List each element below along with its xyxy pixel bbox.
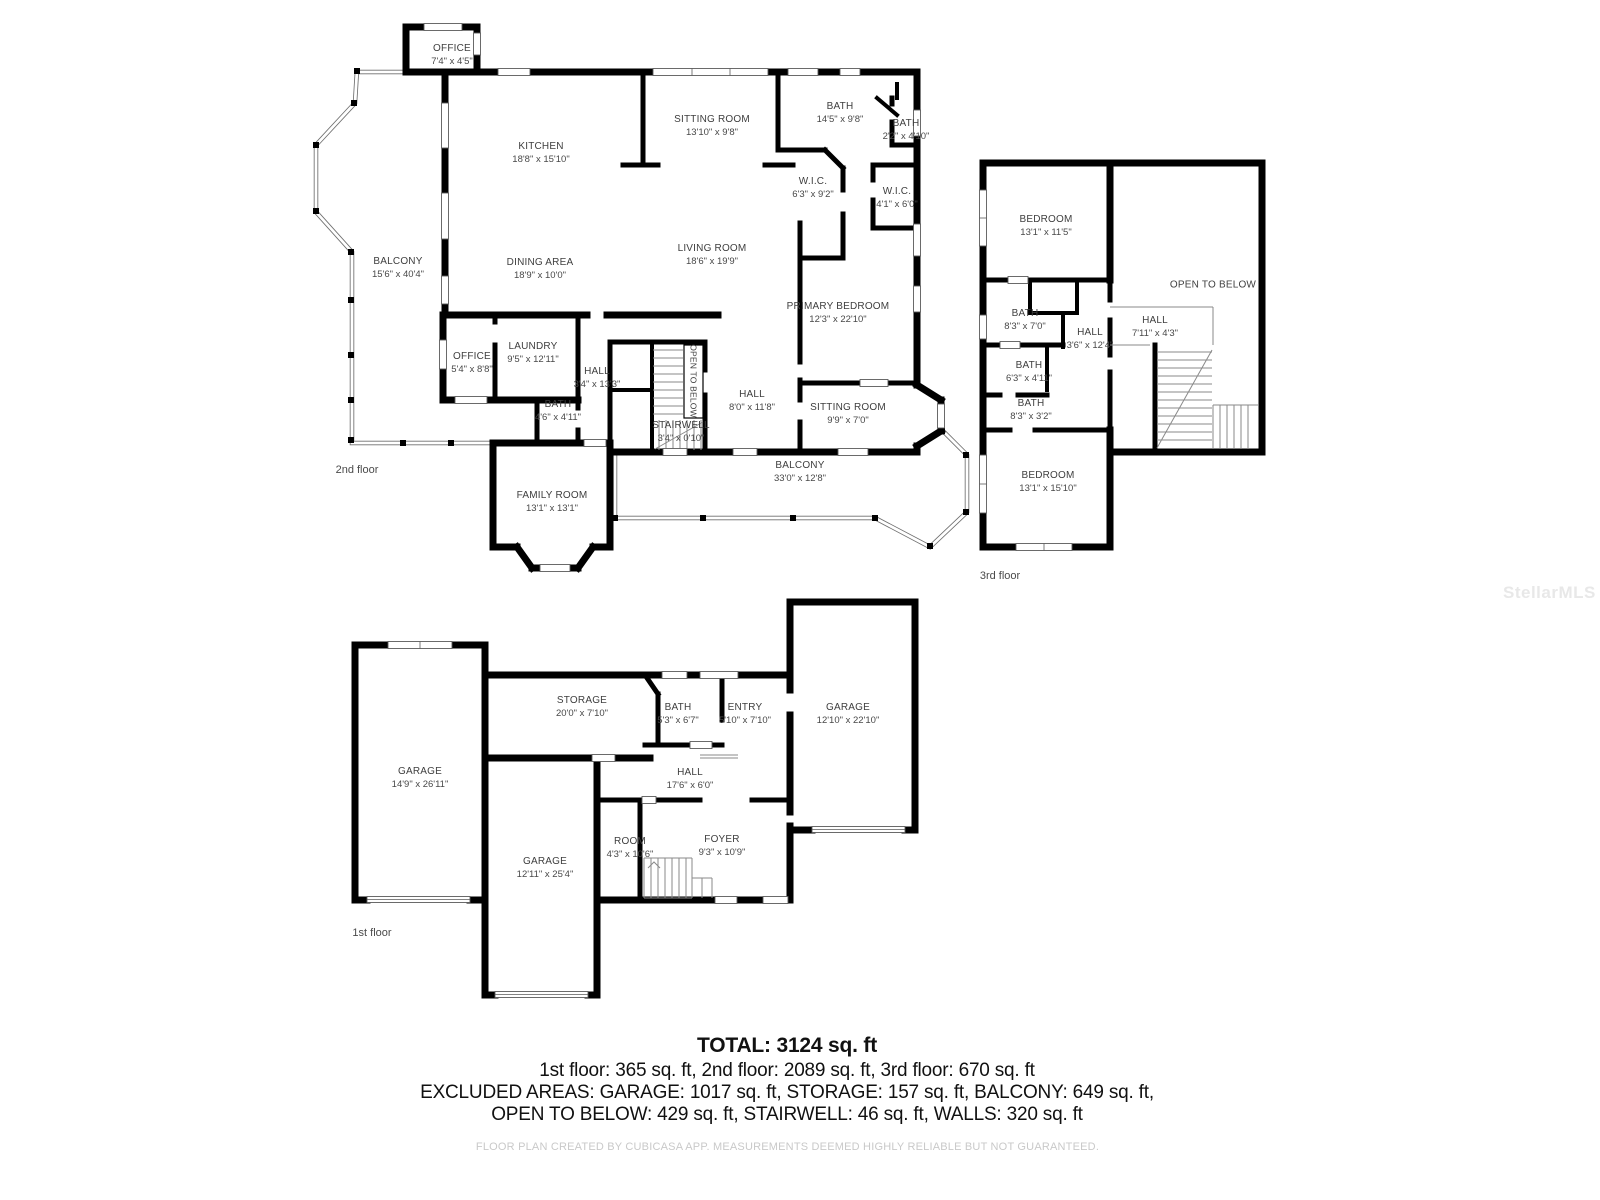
room-label-family-room: FAMILY ROOM13'1" x 13'1" (517, 489, 588, 515)
room-label-sitting-room: SITTING ROOM9'9" x 7'0" (810, 401, 886, 427)
room-label-bath: BATH2'2" x 4'10" (883, 117, 930, 143)
floor-label-3rd-floor: 3rd floor (980, 570, 1020, 582)
room-label-garage: GARAGE12'11" x 25'4" (517, 855, 574, 881)
room-label-bath: BATH6'3" x 4'11" (1006, 359, 1052, 385)
room-label-hall: HALL17'6" x 6'0" (667, 766, 714, 792)
windows-2nd-floor (424, 24, 945, 572)
room-label-kitchen: KITCHEN18'8" x 15'10" (512, 140, 569, 166)
room-label-living-room: LIVING ROOM18'6" x 19'9" (678, 242, 747, 268)
total-area: TOTAL: 3124 sq. ft (387, 1034, 1187, 1058)
floor-areas: 1st floor: 365 sq. ft, 2nd floor: 2089 s… (387, 1060, 1187, 1082)
room-label-open-to-below: OPEN TO BELOW (1170, 279, 1256, 292)
room-label-bedroom: BEDROOM13'1" x 15'10" (1019, 469, 1076, 495)
floor-2-walls (313, 24, 969, 572)
room-label-foyer: FOYER9'3" x 10'9" (699, 833, 746, 859)
room-label-balcony: BALCONY15'6" x 40'4" (372, 255, 424, 281)
room-label-balcony: BALCONY33'0" x 12'8" (774, 459, 826, 485)
floor-1-walls (355, 602, 915, 998)
room-label-bath: BATH5'3" x 6'7" (657, 701, 699, 727)
room-label-bath: BATH14'5" x 9'8" (817, 100, 864, 126)
floor-label-2nd-floor: 2nd floor (336, 464, 379, 476)
room-label-bath: BATH8'3" x 3'2" (1010, 397, 1052, 423)
floor-label-1st-floor: 1st floor (352, 927, 391, 939)
room-label-office: OFFICE7'4" x 4'5" (431, 42, 473, 68)
room-label-sitting-room: SITTING ROOM13'10" x 9'8" (674, 113, 750, 139)
room-label-hall: HALL7'11" x 4'3" (1132, 314, 1178, 340)
floorplan-page: OFFICE7'4" x 4'5"KITCHEN18'8" x 15'10"SI… (0, 0, 1600, 1200)
disclaimer-text: FLOOR PLAN CREATED BY CUBICASA APP. MEAS… (300, 1141, 1275, 1153)
excluded-areas-1: EXCLUDED AREAS: GARAGE: 1017 sq. ft, STO… (387, 1082, 1187, 1104)
room-label-room: ROOM4'3" x 10'6" (607, 835, 654, 861)
area-summary: TOTAL: 3124 sq. ft 1st floor: 365 sq. ft… (387, 1034, 1187, 1126)
room-label-stairwell: STAIRWELL3'4" x 0'10" (652, 419, 710, 445)
stairs-1st-floor (644, 858, 712, 898)
room-label-primary-bedroom: PRIMARY BEDROOM12'3" x 22'10" (787, 300, 890, 326)
excluded-areas-2: OPEN TO BELOW: 429 sq. ft, STAIRWELL: 46… (387, 1104, 1187, 1126)
room-label-entry: ENTRY5'10" x 7'10" (719, 701, 771, 727)
room-label-hall: HALL3'6" x 12'4" (1067, 326, 1114, 352)
stairs-3rd-floor (1157, 350, 1258, 448)
room-label-laundry: LAUNDRY9'5" x 12'11" (507, 340, 558, 366)
room-label-dining-area: DINING AREA18'9" x 10'0" (507, 256, 574, 282)
room-label-bath: BATH8'3" x 7'0" (1004, 307, 1046, 333)
windows-1st-floor (592, 672, 738, 804)
room-label-hall: HALL8'0" x 11'8" (729, 388, 775, 414)
room-label-hall: HALL3'4" x 13'3" (574, 365, 621, 391)
room-label-garage: GARAGE12'10" x 22'10" (817, 701, 880, 727)
room-label-office: OFFICE5'4" x 8'8" (451, 350, 493, 376)
room-label-w-i-c-: W.I.C.6'3" x 9'2" (792, 175, 834, 201)
room-label-w-i-c-: W.I.C.4'1" x 6'0" (876, 185, 918, 211)
room-label-open-to-below: OPEN TO BELOW (687, 344, 700, 418)
room-label-garage: GARAGE14'9" x 26'11" (392, 765, 449, 791)
room-label-bedroom: BEDROOM13'1" x 11'5" (1019, 213, 1072, 239)
watermark: StellarMLS (1503, 583, 1596, 603)
room-label-storage: STORAGE20'0" x 7'10" (556, 694, 608, 720)
room-label-bath: BATH4'6" x 4'11" (535, 398, 581, 424)
